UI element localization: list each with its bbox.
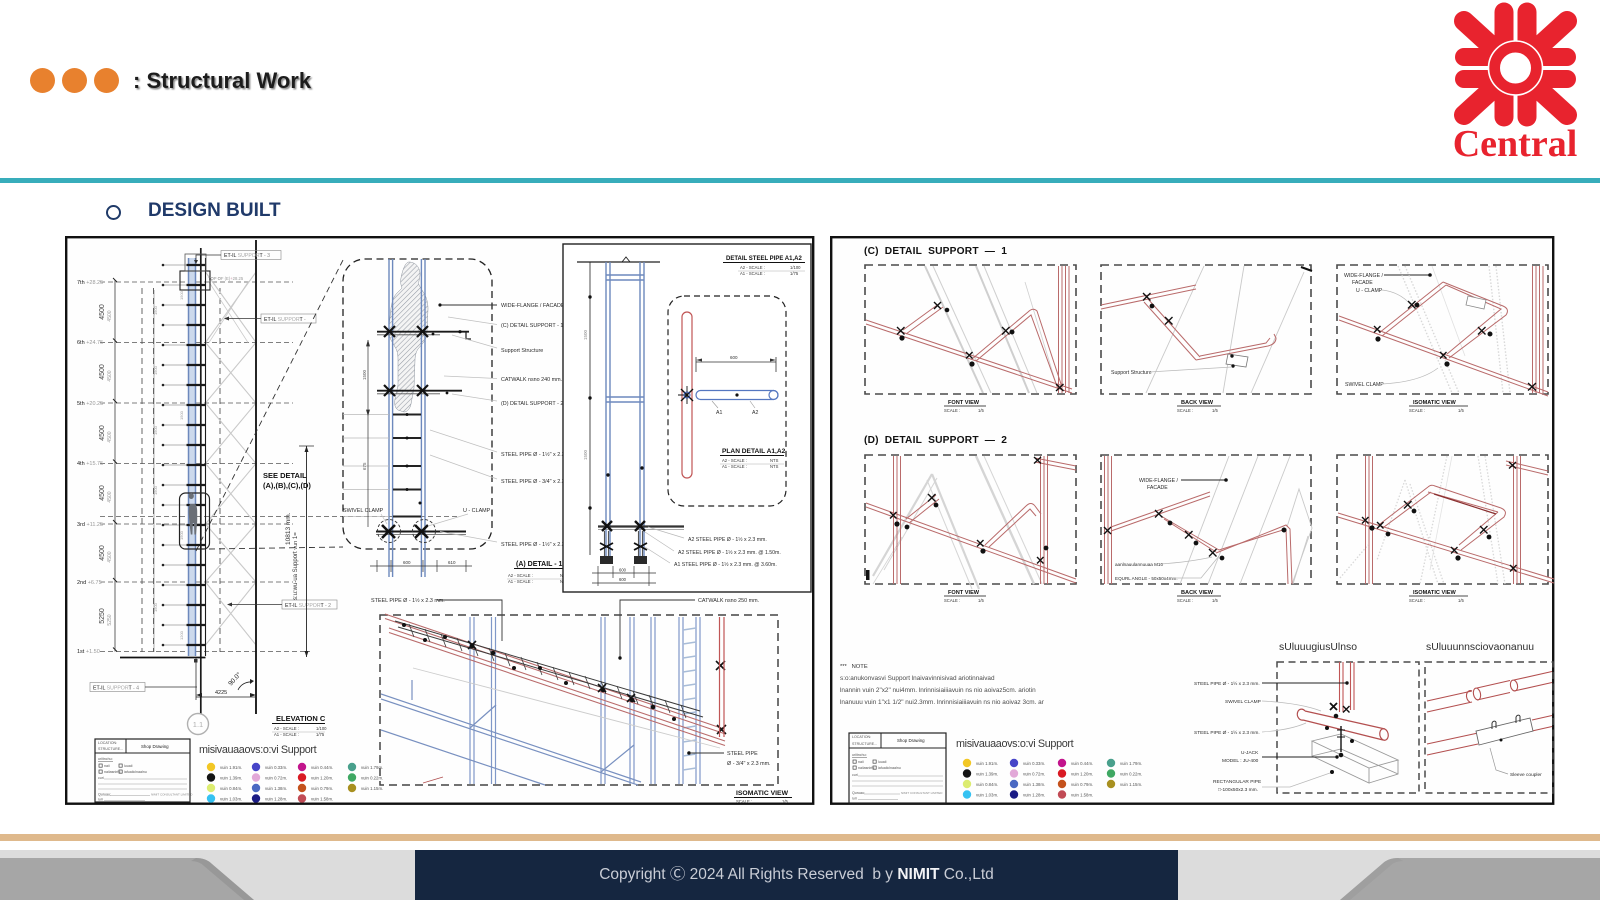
svg-text:4500: 4500 — [107, 431, 113, 442]
svg-text:(A) DETAIL - 1: (A) DETAIL - 1 — [516, 561, 563, 568]
svg-text:1500: 1500 — [583, 449, 588, 460]
svg-text:FACADE: FACADE — [1147, 485, 1168, 491]
svg-text:vuin 0.72m.: vuin 0.72m. — [265, 776, 287, 781]
svg-text:vuin 1.58m.: vuin 1.58m. — [1071, 793, 1093, 798]
svg-text:naiiasnirfu: naiiasnirfu — [858, 766, 874, 770]
svg-text:A2 - SCALE :: A2 - SCALE : — [740, 265, 765, 270]
svg-text:ET-IL SUPPORT - 2: ET-IL SUPPORT - 2 — [285, 603, 331, 609]
svg-text:600: 600 — [619, 577, 627, 582]
svg-text:A2 - SCALE :: A2 - SCALE : — [508, 573, 533, 578]
svg-text:luuaii: luuaii — [878, 760, 887, 764]
svg-text:U - CLAMP: U - CLAMP — [463, 508, 491, 514]
svg-text:vuin 1.38m.: vuin 1.38m. — [265, 786, 287, 791]
svg-text:SCALE :: SCALE : — [736, 799, 752, 804]
svg-text:WIDE-FLANGE / FACADE: WIDE-FLANGE / FACADE — [501, 303, 565, 309]
svg-text:1500: 1500 — [179, 290, 184, 300]
svg-text:s:o:anukonvasvi Support lnaiva: s:o:anukonvasvi Support lnaivavinnisivad… — [840, 675, 995, 682]
svg-text:A1 STEEL PIPE Ø - 1½ x 2.3 mm.: A1 STEEL PIPE Ø - 1½ x 2.3 mm. @ 3.60m. — [674, 561, 777, 568]
svg-text:Ø - 3/4" x 2.3 mm.: Ø - 3/4" x 2.3 mm. — [727, 761, 771, 767]
svg-text:SEE DETAIL: SEE DETAIL — [263, 471, 307, 480]
svg-text:iafuaiiclnaalnu: iafuaiiclnaalnu — [878, 766, 901, 770]
svg-text:A1 - SCALE :: A1 - SCALE : — [740, 271, 765, 276]
svg-text:MODEL : JU-400: MODEL : JU-400 — [1222, 758, 1259, 764]
svg-text:vuin 0.22m.: vuin 0.22m. — [361, 776, 383, 781]
svg-text:1500: 1500 — [583, 329, 588, 340]
svg-text:vuin 0.79m.: vuin 0.79m. — [1071, 782, 1093, 787]
svg-text:A1 - SCALE :: A1 - SCALE : — [508, 579, 533, 584]
svg-text:Support Structure: Support Structure — [1111, 370, 1152, 376]
svg-text:naii: naii — [104, 764, 110, 768]
svg-text:A2 - SCALE :: A2 - SCALE : — [274, 726, 299, 731]
svg-text:4500: 4500 — [107, 551, 113, 562]
svg-text:610: 610 — [448, 560, 456, 565]
svg-text:vuin 0.33m.: vuin 0.33m. — [265, 765, 287, 770]
svg-text:U - CLAMP: U - CLAMP — [1356, 288, 1383, 294]
svg-text:vuin 0.22m.: vuin 0.22m. — [1120, 772, 1142, 777]
svg-text:1/75: 1/75 — [316, 732, 325, 737]
svg-text:NIMIT CONSULTANT LIMITED: NIMIT CONSULTANT LIMITED — [151, 793, 193, 797]
svg-text:6th +24.75: 6th +24.75 — [77, 340, 103, 346]
svg-text:1/5: 1/5 — [1458, 598, 1464, 603]
svg-text:4500: 4500 — [99, 545, 106, 561]
svg-text:SCALE :: SCALE : — [944, 408, 960, 413]
svg-text:1/100: 1/100 — [790, 265, 801, 270]
svg-text:LOCATION:: LOCATION: — [852, 735, 871, 739]
svg-text:600: 600 — [619, 568, 627, 573]
svg-text:curi: curi — [98, 776, 104, 780]
svg-text:A2 STEEL PIPE Ø - 1½ x 2.3 mm.: A2 STEEL PIPE Ø - 1½ x 2.3 mm. @ 1.50m. — [678, 549, 781, 556]
svg-text:RECTANGULAR PIPE: RECTANGULAR PIPE — [1213, 779, 1261, 785]
svg-text:SWIVEL CLAMP: SWIVEL CLAMP — [343, 508, 384, 514]
svg-text:vuin 1.79m.: vuin 1.79m. — [1120, 761, 1142, 766]
svg-text:5250: 5250 — [107, 614, 113, 625]
svg-text:sUluuugiusUlnso: sUluuugiusUlnso — [1279, 642, 1357, 653]
svg-text:(D) DETAIL SUPPORT — 2: (D) DETAIL SUPPORT — 2 — [864, 435, 1007, 446]
svg-text:A1 - SCALE :: A1 - SCALE : — [274, 732, 299, 737]
svg-text:5th +20.25: 5th +20.25 — [77, 401, 103, 407]
svg-text:vuin 1.91m.: vuin 1.91m. — [220, 765, 242, 770]
svg-text:iafuaiiclnaalnu: iafuaiiclnaalnu — [124, 770, 147, 774]
svg-text:naii: naii — [858, 760, 864, 764]
svg-text:2nd +6.75: 2nd +6.75 — [77, 580, 102, 586]
svg-text:4500: 4500 — [99, 364, 106, 380]
svg-text:aanlnauulannuuaa M10: aanlnauulannuuaa M10 — [1115, 562, 1163, 567]
svg-text:5250: 5250 — [99, 608, 106, 624]
svg-text:Sleeve coupler: Sleeve coupler — [1510, 772, 1542, 778]
svg-text:(C) DETAIL SUPPORT - 1: (C) DETAIL SUPPORT - 1 — [501, 323, 563, 329]
svg-text:1500: 1500 — [179, 410, 184, 420]
svg-text:vuin 1.15m.: vuin 1.15m. — [1120, 782, 1142, 787]
svg-text:luuaii: luuaii — [124, 764, 133, 768]
svg-text:PLAN DETAIL A1,A2: PLAN DETAIL A1,A2 — [722, 448, 786, 455]
svg-text:lnannin vuin 2"x2" nui4mm. lnr: lnannin vuin 2"x2" nui4mm. lnrinnisiaiii… — [840, 687, 1036, 694]
svg-text:SCALE :: SCALE : — [1177, 408, 1193, 413]
svg-text:lnanuuu vuin 1"x1 1/2" nui2.3m: lnanuuu vuin 1"x1 1/2" nui2.3mm. lnrinni… — [840, 699, 1045, 706]
svg-text:3rd +11.25: 3rd +11.25 — [77, 522, 103, 528]
svg-text:1.1: 1.1 — [193, 720, 203, 729]
svg-text:curi: curi — [852, 773, 858, 777]
svg-text:ET-IL SUPPORT - 3: ET-IL SUPPORT - 3 — [224, 253, 270, 259]
svg-text:vuin 1.20m.: vuin 1.20m. — [1071, 772, 1093, 777]
svg-text:s:u:wu-ua Support vun 1=: s:u:wu-ua Support vun 1= — [293, 532, 299, 600]
svg-text:Quruau:: Quruau: — [852, 791, 865, 795]
svg-text:vuin 1.58m.: vuin 1.58m. — [311, 797, 333, 802]
svg-text:1/100: 1/100 — [316, 726, 327, 731]
svg-text:4500: 4500 — [107, 370, 113, 381]
svg-text:NIMIT CONSULTANT LIMITED: NIMIT CONSULTANT LIMITED — [901, 791, 943, 795]
svg-text:ELEVATION C: ELEVATION C — [276, 714, 326, 723]
svg-text:SCALE :: SCALE : — [1177, 598, 1193, 603]
svg-text:(D) DETAIL SUPPORT - 2: (D) DETAIL SUPPORT - 2 — [501, 401, 563, 407]
svg-text:LOCATION:: LOCATION: — [98, 741, 117, 745]
svg-text:vuin 1.39m.: vuin 1.39m. — [220, 776, 242, 781]
svg-text:FACADE: FACADE — [1352, 280, 1373, 286]
svg-text:600: 600 — [730, 355, 738, 360]
svg-text:misivauaaovs:o:vi Support: misivauaaovs:o:vi Support — [199, 744, 317, 756]
svg-text:vuin 0.79m.: vuin 0.79m. — [311, 786, 333, 791]
svg-text:WIDE-FLANGE /: WIDE-FLANGE / — [1139, 478, 1178, 484]
svg-text:1500: 1500 — [362, 369, 367, 380]
svg-text:iuri: iuri — [98, 798, 103, 802]
svg-text:vuin 1.20m.: vuin 1.20m. — [311, 776, 333, 781]
svg-text:10813 mm.: 10813 mm. — [285, 512, 292, 545]
svg-text:vuin 1.91m.: vuin 1.91m. — [976, 761, 998, 766]
svg-text:675: 675 — [362, 462, 367, 470]
svg-text:vuin 0.44m.: vuin 0.44m. — [1071, 761, 1093, 766]
svg-text:STRUCTURE...: STRUCTURE... — [852, 742, 877, 746]
svg-text:A1: A1 — [716, 410, 722, 416]
svg-text:EQURL ANGLE - 50x50x4mm.: EQURL ANGLE - 50x50x4mm. — [1115, 576, 1178, 581]
svg-text:BACK VIEW: BACK VIEW — [1181, 400, 1214, 406]
svg-text:FONT VIEW: FONT VIEW — [948, 590, 980, 596]
svg-text:ET-IL SUPPORT - 4: ET-IL SUPPORT - 4 — [93, 686, 139, 692]
svg-text:vuin 0.84m.: vuin 0.84m. — [976, 782, 998, 787]
svg-text:vuin 1.03m.: vuin 1.03m. — [976, 793, 998, 798]
svg-text:Quruau:: Quruau: — [98, 793, 111, 797]
svg-text:1/5: 1/5 — [1458, 408, 1464, 413]
svg-text:vuin 1.03m.: vuin 1.03m. — [220, 797, 242, 802]
svg-text:1/5: 1/5 — [782, 799, 788, 804]
svg-text:NTS: NTS — [770, 464, 779, 469]
svg-text:SWIVEL CLAMP: SWIVEL CLAMP — [1225, 699, 1261, 705]
svg-text:□-100x50x2.3 mm.: □-100x50x2.3 mm. — [1218, 787, 1258, 793]
svg-text:A2: A2 — [752, 410, 758, 416]
svg-text:4500: 4500 — [99, 304, 106, 320]
svg-text:4225: 4225 — [215, 690, 227, 696]
svg-text:SWIVEL CLAMP: SWIVEL CLAMP — [1345, 382, 1384, 388]
svg-text:4500: 4500 — [107, 491, 113, 502]
svg-text:4th +15.75: 4th +15.75 — [77, 461, 103, 467]
svg-text:vuin 1.28m.: vuin 1.28m. — [1023, 793, 1045, 798]
svg-text:misivauaaovs:o:vi Support: misivauaaovs:o:vi Support — [956, 738, 1074, 750]
svg-text:(C) DETAIL SUPPORT — 1: (C) DETAIL SUPPORT — 1 — [864, 246, 1007, 257]
svg-text:4500: 4500 — [107, 310, 113, 321]
svg-text:vuin 1.38m.: vuin 1.38m. — [1023, 782, 1045, 787]
svg-text:4500: 4500 — [99, 425, 106, 441]
svg-text:U-JACK: U-JACK — [1241, 750, 1259, 756]
svg-text:vuin 0.84m.: vuin 0.84m. — [220, 786, 242, 791]
svg-text:iuri: iuri — [852, 797, 857, 801]
svg-text:vuin 1.15m.: vuin 1.15m. — [361, 786, 383, 791]
svg-text:ET-IL SUPPORT -: ET-IL SUPPORT - — [264, 317, 306, 323]
svg-text:Central: Central — [1453, 123, 1578, 165]
svg-text:STEEL PIPE Ø - 1½ x 2.3 mm.: STEEL PIPE Ø - 1½ x 2.3 mm. — [1194, 729, 1260, 736]
svg-text:1/5: 1/5 — [978, 598, 984, 603]
svg-text:1st +1.50: 1st +1.50 — [77, 649, 100, 655]
svg-text:*** NOTE: *** NOTE — [840, 664, 868, 670]
svg-text:1/5: 1/5 — [978, 408, 984, 413]
svg-text:STEEL PIPE Ø - 1½ x 2.3 mm.: STEEL PIPE Ø - 1½ x 2.3 mm. — [371, 597, 445, 604]
svg-text:uriitnchu:: uriitnchu: — [98, 757, 113, 761]
svg-text:STEEL PIPE Ø - 1½ x 2.3 mm.: STEEL PIPE Ø - 1½ x 2.3 mm. — [1194, 680, 1260, 687]
svg-text:WIDE-FLANGE /: WIDE-FLANGE / — [1344, 273, 1383, 279]
svg-text:sUluuunnsciovaonanuu: sUluuunnsciovaonanuu — [1426, 642, 1534, 653]
svg-text:(A),(B),(C),(D): (A),(B),(C),(D) — [263, 481, 311, 490]
svg-text:naiiasnirfu: naiiasnirfu — [104, 770, 120, 774]
svg-text:SCALE :: SCALE : — [1409, 598, 1425, 603]
svg-text:SCALE :: SCALE : — [944, 598, 960, 603]
svg-text:A1 - SCALE :: A1 - SCALE : — [722, 464, 747, 469]
svg-text:ISOMATIC VIEW: ISOMATIC VIEW — [1413, 590, 1457, 596]
svg-text:vuin 0.44m.: vuin 0.44m. — [311, 765, 333, 770]
svg-text:vuin 0.33m.: vuin 0.33m. — [1023, 761, 1045, 766]
svg-text:Shop Drawing: Shop Drawing — [141, 744, 169, 749]
svg-text:vuin 0.72m.: vuin 0.72m. — [1023, 772, 1045, 777]
svg-text:uriitnchu:: uriitnchu: — [852, 753, 867, 757]
svg-text:NTS: NTS — [770, 458, 779, 463]
svg-text:A2 - SCALE :: A2 - SCALE : — [722, 458, 747, 463]
svg-text:1200: 1200 — [179, 630, 184, 640]
svg-text:Shop Drawing: Shop Drawing — [897, 738, 925, 743]
svg-text:600: 600 — [403, 560, 411, 565]
svg-text:1/5: 1/5 — [1212, 598, 1218, 603]
svg-text:4500: 4500 — [99, 485, 106, 501]
svg-text:1/5: 1/5 — [1212, 408, 1218, 413]
svg-text:DETAIL STEEL PIPE A1,A2: DETAIL STEEL PIPE A1,A2 — [726, 256, 802, 262]
svg-text:STEEL PIPE: STEEL PIPE — [727, 751, 758, 757]
svg-text:vuin 1.28m.: vuin 1.28m. — [265, 797, 287, 802]
svg-text:ISOMATIC VIEW: ISOMATIC VIEW — [736, 790, 789, 797]
svg-text:Support Structure: Support Structure — [501, 348, 543, 354]
svg-text:ISOMATIC VIEW: ISOMATIC VIEW — [1413, 400, 1457, 406]
svg-text:A2 STEEL PIPE Ø - 1½ x 2.3 mm.: A2 STEEL PIPE Ø - 1½ x 2.3 mm. — [688, 536, 767, 543]
svg-text:TOP OF (E)+28.25: TOP OF (E)+28.25 — [208, 276, 244, 281]
svg-text:vuin 1.39m.: vuin 1.39m. — [976, 772, 998, 777]
svg-text:FONT VIEW: FONT VIEW — [948, 400, 980, 406]
svg-text:1/75: 1/75 — [790, 271, 799, 276]
svg-text:7th +28.25: 7th +28.25 — [77, 280, 103, 286]
svg-text:STRUCTURE...: STRUCTURE... — [98, 747, 123, 751]
svg-text:CATWALK nsno 240 mm.: CATWALK nsno 240 mm. — [501, 377, 562, 383]
svg-text:BACK VIEW: BACK VIEW — [1181, 590, 1214, 596]
svg-text:vuin 1.79m.: vuin 1.79m. — [361, 765, 383, 770]
svg-text:CATWALK nsno 250 mm.: CATWALK nsno 250 mm. — [698, 598, 759, 604]
svg-text:SCALE :: SCALE : — [1409, 408, 1425, 413]
